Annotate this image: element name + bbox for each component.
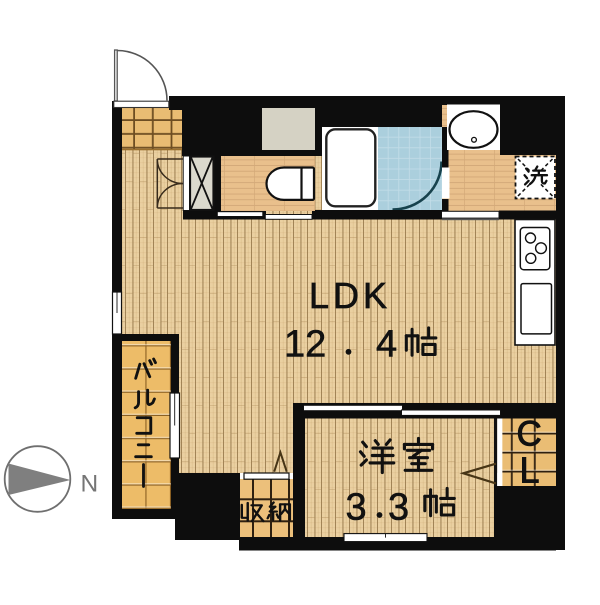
svg-text:C: C (517, 415, 542, 454)
svg-text:12: 12 (284, 324, 326, 366)
svg-text:4: 4 (376, 324, 397, 366)
svg-text:L: L (520, 450, 540, 491)
svg-text:N: N (81, 471, 99, 498)
svg-text:LDK: LDK (309, 275, 391, 316)
svg-text:3: 3 (346, 487, 367, 529)
svg-text:3: 3 (388, 487, 409, 529)
